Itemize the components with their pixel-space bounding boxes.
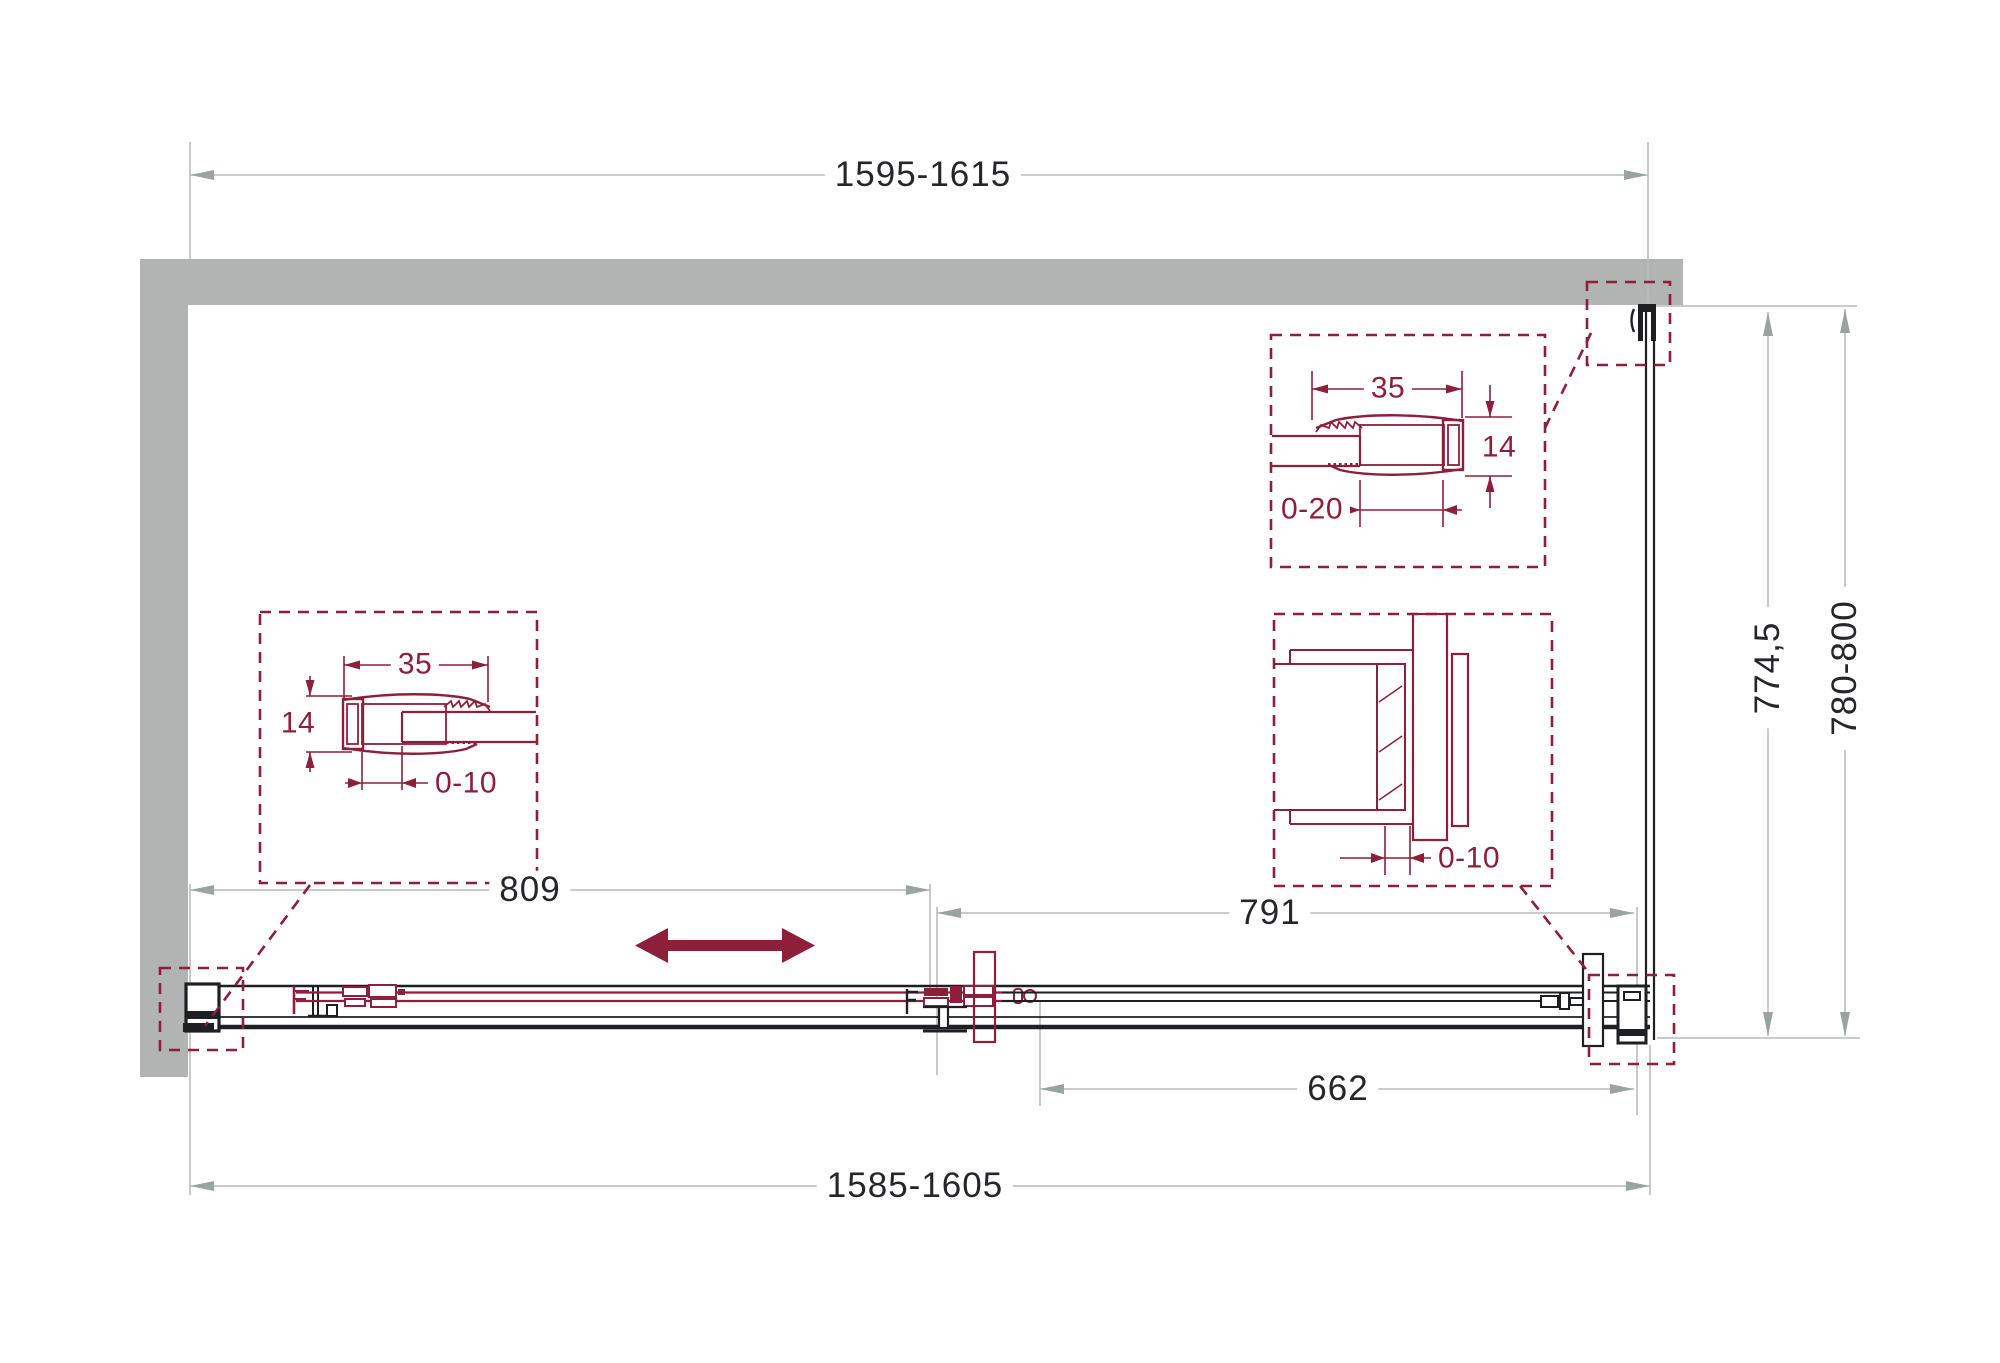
side-return-panel [1632,304,1657,1040]
left-wall-profile [183,984,219,1032]
profile-jaw-serration [1316,422,1362,432]
left-profile-adjust-label: 0-10 [428,767,504,800]
drawing-svg [0,0,2000,1363]
profile-chamber [362,704,446,744]
dim-door-width-label: 809 [489,871,570,910]
left-profile-width-label: 35 [391,648,439,681]
callout-line-bottom-right [1520,886,1589,973]
callout-line-top-right [1545,333,1591,428]
right-end-hardware [1541,954,1646,1046]
dim-bottom-width-label: 1585-1605 [817,1167,1013,1206]
profile-end-cap [343,699,363,749]
right-profile-width-label: 35 [1364,372,1412,405]
left-profile-depth-label: 14 [274,707,322,740]
dim-depth-inner-label: 774,5 [1749,608,1788,729]
cover-plate [1452,654,1468,826]
corner-connector-adjust-label: 0-10 [1431,842,1507,875]
glass-edge [1272,436,1360,466]
left-wall [140,259,188,1077]
dim-top-width-label: 1595-1615 [825,156,1021,195]
glass-edge [402,712,536,742]
connector-top-flange [1274,650,1415,664]
right-profile-adjust-label: 0-20 [1274,493,1350,526]
profile-jaw-serration [444,701,490,711]
connector-bottom-flange [1274,810,1415,824]
roller-carriage [343,985,405,1007]
dim-fixed-width-label: 791 [1229,894,1310,933]
dim-depth-outer-label: 780-800 [1826,586,1865,749]
right-profile-depth-label: 14 [1475,431,1523,464]
profile-end-cap [1443,420,1463,470]
shower-enclosure-technical-drawing: 1595-1615 809 791 662 1585-1605 774,5 78… [0,0,2000,1363]
dim-return-width-label: 662 [1297,1070,1378,1109]
top-wall [140,259,1683,305]
side-glass-section [1413,614,1447,840]
profile-chamber [1360,425,1444,465]
corner-connector-detail [1274,614,1468,875]
slide-direction-arrow-icon [635,928,815,963]
